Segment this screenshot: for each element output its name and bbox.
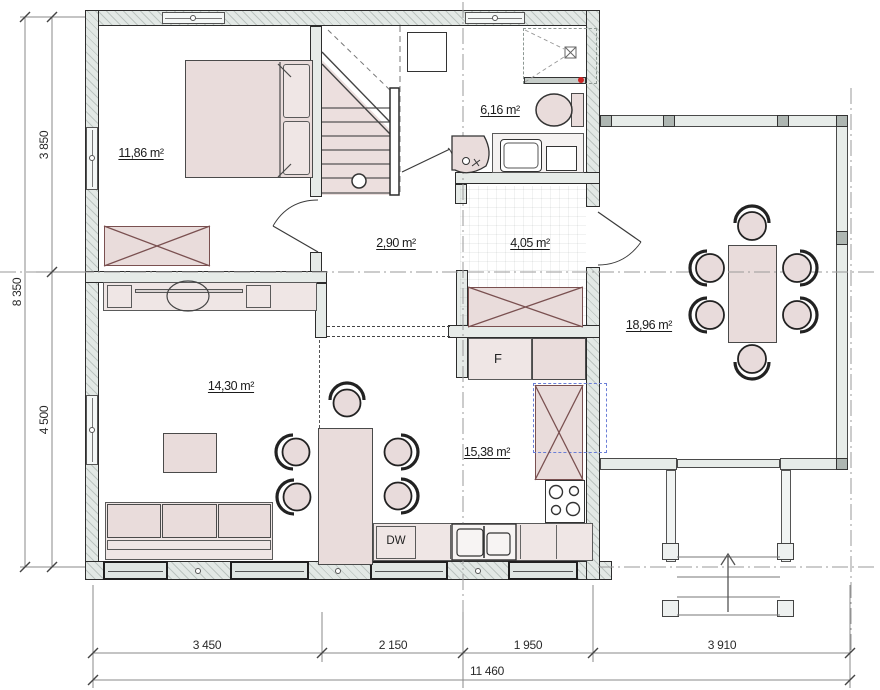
entry-arrow bbox=[721, 554, 735, 612]
bedroom-door-leaf bbox=[273, 226, 318, 252]
toilet-tank bbox=[571, 93, 584, 127]
veranda-post bbox=[836, 458, 848, 470]
planned-feature-outline bbox=[533, 383, 607, 453]
sideboard-shelf bbox=[135, 289, 243, 293]
sideboard bbox=[103, 282, 317, 311]
window-bottom-3 bbox=[370, 561, 448, 580]
veranda-post bbox=[836, 231, 848, 245]
sideboard-cabinet bbox=[107, 285, 132, 308]
bath-door-arc bbox=[448, 148, 455, 170]
porch-steps bbox=[677, 557, 780, 615]
dining-table bbox=[728, 245, 777, 343]
entry-door-leaf bbox=[598, 212, 641, 242]
bedroom-wardrobe bbox=[104, 226, 210, 266]
porch-door bbox=[677, 459, 780, 468]
entry-door-arc bbox=[598, 242, 641, 265]
veranda-post bbox=[600, 115, 612, 127]
veranda-wall-bottom-left bbox=[600, 458, 677, 470]
counter-divider bbox=[556, 525, 557, 559]
counter-divider bbox=[450, 525, 451, 559]
window-left-bedroom bbox=[86, 127, 98, 190]
sofa-back bbox=[107, 540, 271, 550]
sofa-cushion bbox=[107, 504, 161, 538]
room-label-living: 14,30 m² bbox=[208, 379, 254, 393]
dim-left-total: 8 350 bbox=[10, 278, 24, 307]
bed-pillow bbox=[283, 64, 310, 118]
room-label-entry: 4,05 m² bbox=[510, 236, 550, 250]
fridge-label: F bbox=[494, 351, 502, 366]
wall-bath-bottom bbox=[455, 172, 600, 184]
bed-pillow bbox=[283, 121, 310, 175]
sofa-cushion bbox=[218, 504, 271, 538]
porch-post-base bbox=[662, 600, 679, 617]
duct-shaft bbox=[407, 32, 447, 72]
dim-bottom-1: 3 450 bbox=[193, 638, 222, 652]
dimension-ticks bbox=[20, 12, 855, 685]
coffee-table bbox=[163, 433, 217, 473]
dim-left-top: 3 850 bbox=[37, 131, 51, 160]
counter-divider bbox=[520, 525, 521, 559]
room-label-kitchen: 15,38 m² bbox=[464, 445, 510, 459]
veranda-wall-top bbox=[600, 115, 848, 127]
dim-bottom-4: 3 910 bbox=[708, 638, 737, 652]
porch-post-base bbox=[662, 543, 679, 560]
dim-left-bottom: 4 500 bbox=[37, 406, 51, 435]
room-label-hall: 2,90 m² bbox=[376, 236, 416, 250]
dryer bbox=[546, 146, 577, 171]
dim-bottom-3: 1 950 bbox=[514, 638, 543, 652]
kitchen-cabinet bbox=[532, 338, 586, 380]
room-label-bedroom: 11,86 m² bbox=[118, 146, 163, 160]
shower-partition bbox=[524, 77, 586, 84]
window-bottom-1 bbox=[103, 561, 168, 580]
floor-plan: 11,86 m² 6,16 m² 2,90 m² 4,05 m² 18,96 m… bbox=[0, 0, 880, 690]
zone-boundary-dashed bbox=[319, 340, 320, 428]
veranda-wall-right bbox=[836, 115, 848, 470]
stove bbox=[545, 480, 585, 523]
window-bottom-2 bbox=[230, 561, 309, 580]
dishwasher-label: DW bbox=[386, 535, 405, 547]
window-top-bath bbox=[465, 12, 525, 24]
toilet-bowl bbox=[536, 94, 572, 126]
dim-bottom-total: 11 460 bbox=[470, 664, 504, 678]
window-bottom-4 bbox=[508, 561, 578, 580]
sideboard-cabinet bbox=[246, 285, 271, 308]
veranda-post bbox=[777, 115, 789, 127]
entry-closet bbox=[468, 287, 583, 327]
sink-drain bbox=[463, 158, 470, 165]
corner-sink bbox=[452, 136, 489, 173]
window-left-living bbox=[86, 395, 98, 465]
open-plan-beam bbox=[327, 326, 450, 337]
bath-door-leaf bbox=[402, 149, 450, 172]
room-label-bathroom: 6,16 m² bbox=[480, 103, 520, 117]
linework-overlay bbox=[0, 0, 880, 690]
dim-bottom-2: 2 150 bbox=[379, 638, 408, 652]
veranda-post bbox=[663, 115, 675, 127]
porch-post-base bbox=[777, 600, 794, 617]
staircase bbox=[322, 26, 400, 195]
room-label-dining: 18,96 m² bbox=[626, 318, 672, 332]
veranda-post bbox=[836, 115, 848, 127]
wall-left bbox=[85, 10, 99, 580]
washing-machine bbox=[500, 139, 542, 172]
sofa-cushion bbox=[162, 504, 217, 538]
porch-post-base bbox=[777, 543, 794, 560]
shower-area bbox=[523, 28, 597, 84]
window-top-bedroom bbox=[162, 12, 225, 24]
bedroom-door-arc bbox=[273, 200, 318, 226]
kitchen-island bbox=[318, 428, 373, 565]
